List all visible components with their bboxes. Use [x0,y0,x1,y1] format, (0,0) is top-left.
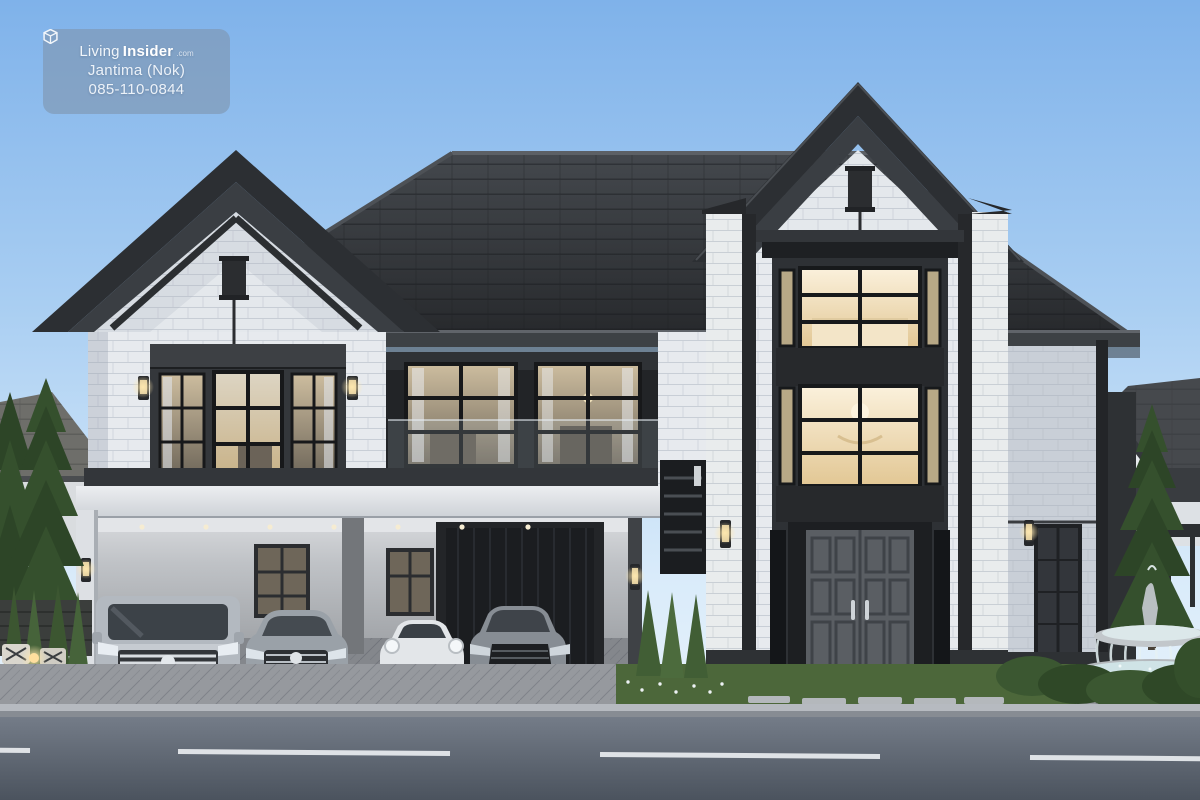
carport-window [388,550,432,614]
door-handle[interactable] [851,600,855,620]
left-wing-window [160,372,336,478]
rendering-canvas: LivingInsider.com Jantima (Nok) 085-110-… [0,0,1200,800]
parapet-band [84,468,660,488]
street [0,704,1200,800]
carport-window [256,546,308,616]
first-floor-band [76,486,716,518]
door-handle[interactable] [865,600,869,620]
brand-prefix: Living [79,43,119,62]
agent-phone: 085-110-0844 [89,81,185,100]
right-side-wall [1008,340,1136,700]
side-glass-door[interactable] [1036,526,1080,658]
brand-tld: .com [176,49,193,59]
road [0,717,1200,800]
watermark-logo: LivingInsider.com [79,43,193,62]
agent-name: Jantima (Nok) [88,62,185,81]
balcony [386,352,660,488]
brand-suffix: Insider [123,43,174,62]
lower-window [780,386,940,486]
watermark-badge: LivingInsider.com Jantima (Nok) 085-110-… [43,29,230,114]
house-cube-icon [43,29,58,44]
upper-window [780,268,940,348]
architectural-rendering [0,0,1200,800]
